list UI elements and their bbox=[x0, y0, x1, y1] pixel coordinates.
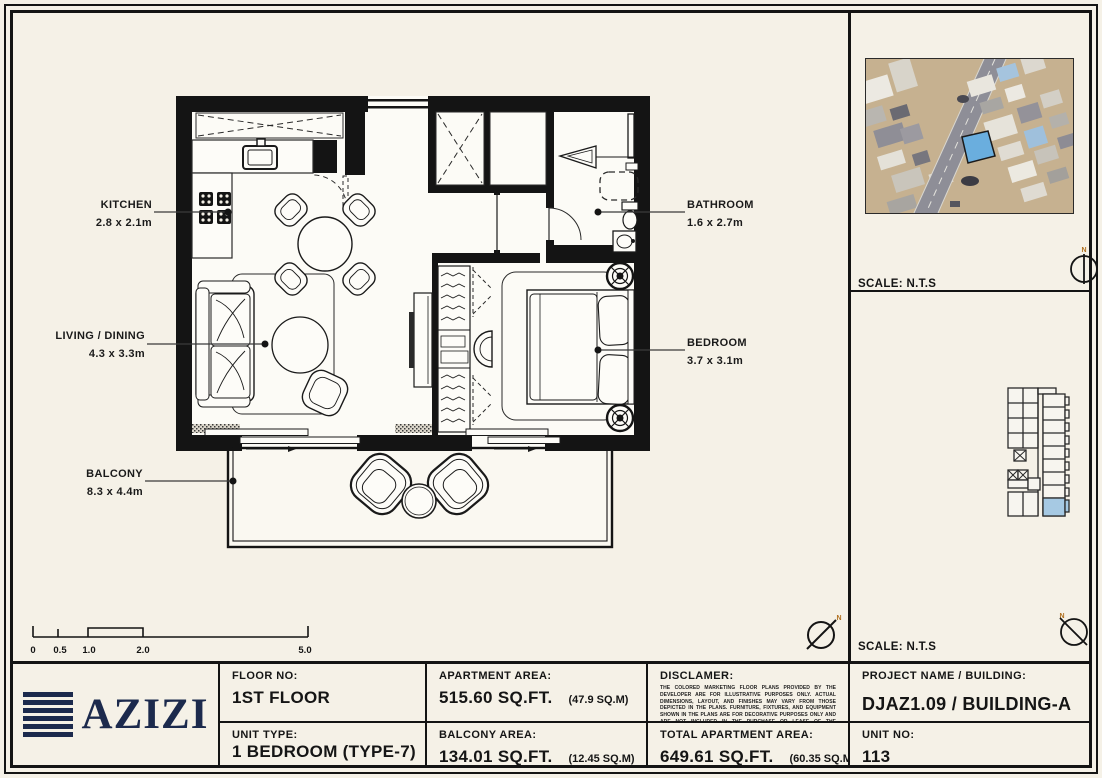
total-area-cell: TOTAL APARTMENT AREA: 649.61 SQ.FT. (60.… bbox=[646, 721, 848, 765]
total-area-label: TOTAL APARTMENT AREA: bbox=[660, 729, 836, 741]
floor-no-cell: FLOOR NO: 1ST FLOOR bbox=[218, 664, 425, 721]
floorplan-sheet: 0 0.5 1.0 2.0 5.0 N KITCHEN 2.8 x 2.1m L… bbox=[0, 0, 1102, 778]
balcony-area-label: BALCONY AREA: bbox=[439, 729, 634, 741]
logo-bars-icon bbox=[23, 692, 73, 737]
floor-no-label: FLOOR NO: bbox=[232, 670, 413, 682]
project-value: DJAZ1.09 / BUILDING-A bbox=[862, 694, 1077, 715]
panel-divider-horizontal bbox=[851, 290, 1089, 292]
balcony-area-cell: BALCONY AREA: 134.01 SQ.FT. (12.45 SQ.M) bbox=[425, 721, 646, 765]
unit-no-label: UNIT NO: bbox=[862, 729, 1077, 741]
apartment-area-value: 515.60 SQ.FT. bbox=[439, 688, 553, 708]
panel-divider-vertical bbox=[848, 13, 851, 661]
disclaimer-cell: DISCLAMER: THE COLORED MARKETING FLOOR P… bbox=[646, 664, 848, 721]
total-area-metric: (60.35 SQ.M) bbox=[790, 753, 848, 765]
project-cell: PROJECT NAME / BUILDING: DJAZ1.09 / BUIL… bbox=[848, 664, 1089, 721]
disclaimer-label: DISCLAMER: bbox=[660, 670, 836, 682]
title-block: AZIZI FLOOR NO: 1ST FLOOR APARTMENT AREA… bbox=[13, 661, 1089, 765]
disclaimer-text: THE COLORED MARKETING FLOOR PLANS PROVID… bbox=[660, 685, 836, 721]
logo-text: AZIZI bbox=[82, 693, 209, 736]
apartment-area-cell: APARTMENT AREA: 515.60 SQ.FT. (47.9 SQ.M… bbox=[425, 664, 646, 721]
unit-type-value: 1 BEDROOM (TYPE-7) bbox=[232, 742, 413, 762]
unit-type-label: UNIT TYPE: bbox=[232, 729, 413, 741]
unit-no-value: 113 bbox=[862, 747, 1077, 765]
apartment-area-metric: (47.9 SQ.M) bbox=[569, 694, 629, 706]
floor-no-value: 1ST FLOOR bbox=[232, 688, 413, 708]
balcony-area-value: 134.01 SQ.FT. bbox=[439, 747, 553, 765]
logo-cell: AZIZI bbox=[13, 664, 218, 765]
unit-no-cell: UNIT NO: 113 bbox=[848, 721, 1089, 765]
balcony-area-metric: (12.45 SQ.M) bbox=[569, 753, 635, 765]
project-label: PROJECT NAME / BUILDING: bbox=[862, 670, 1077, 682]
apartment-area-label: APARTMENT AREA: bbox=[439, 670, 634, 682]
sheet-inner-border bbox=[10, 10, 1092, 768]
unit-type-cell: UNIT TYPE: 1 BEDROOM (TYPE-7) bbox=[218, 721, 425, 765]
total-area-value: 649.61 SQ.FT. bbox=[660, 747, 774, 765]
azizi-logo: AZIZI bbox=[23, 692, 209, 737]
